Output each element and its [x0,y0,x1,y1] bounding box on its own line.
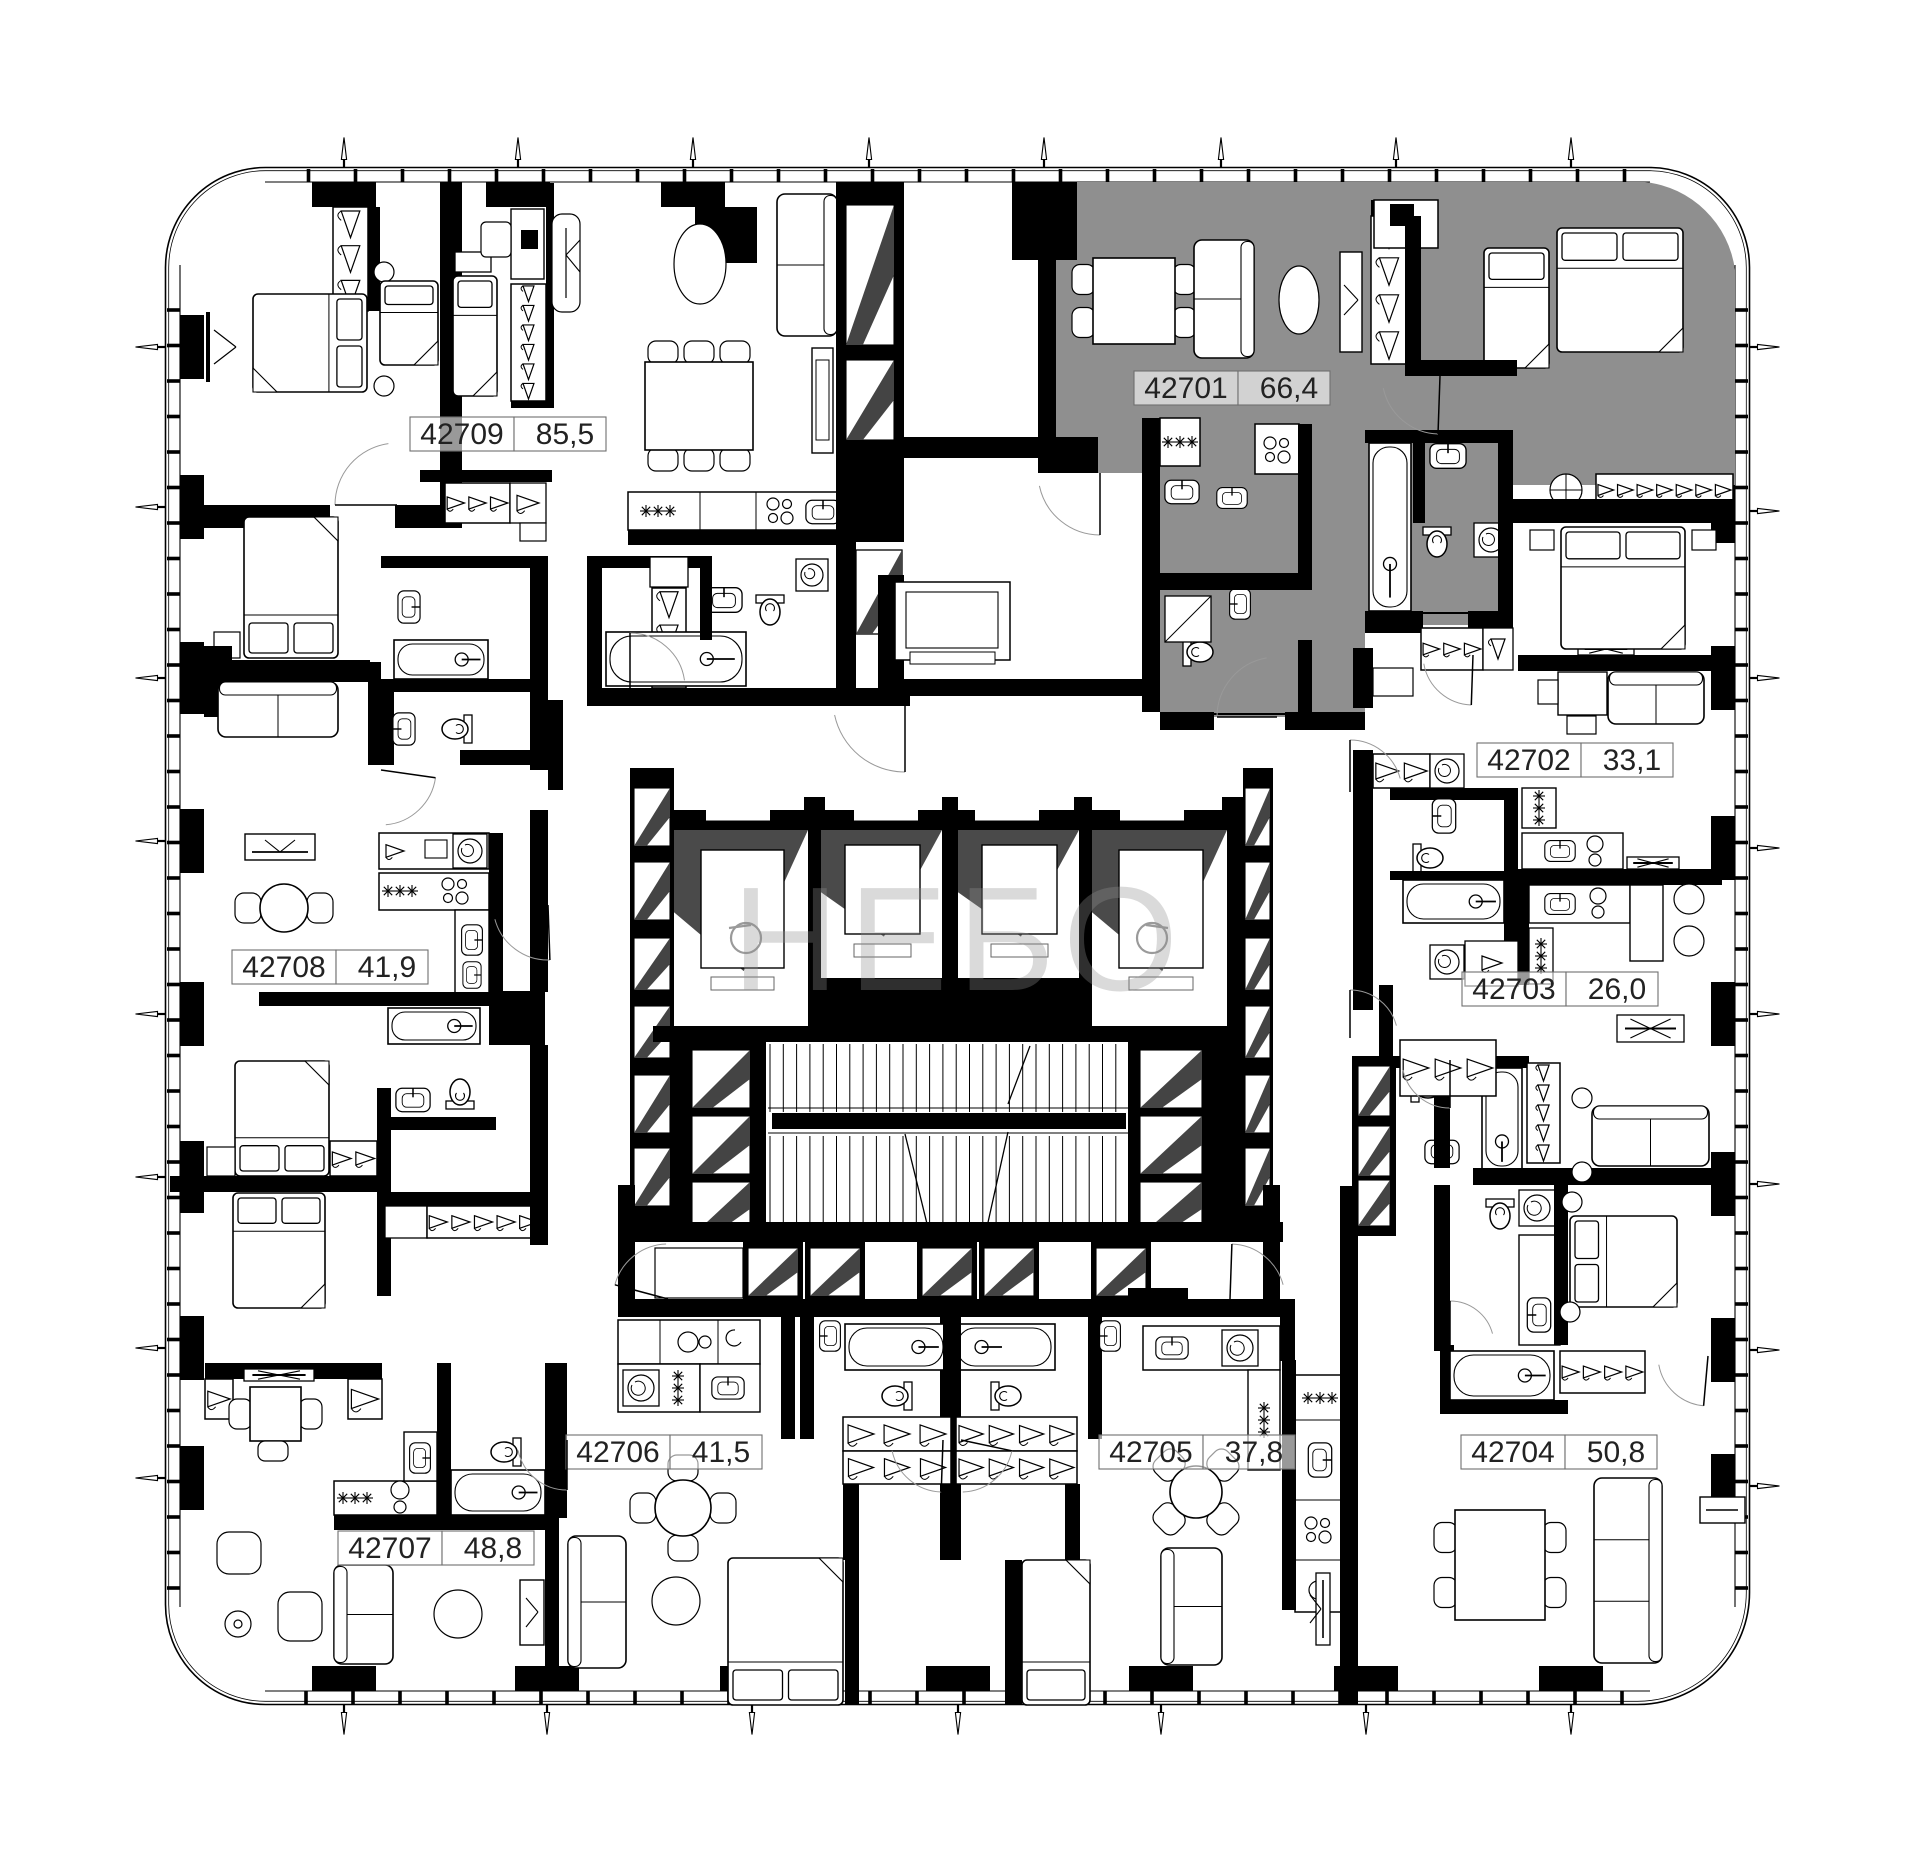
svg-text:48,8: 48,8 [464,1532,522,1565]
svg-text:42705: 42705 [1109,1436,1192,1469]
svg-text:41,9: 41,9 [358,951,416,984]
svg-text:42706: 42706 [576,1436,659,1469]
svg-text:42704: 42704 [1471,1436,1554,1469]
svg-text:42708: 42708 [242,951,325,984]
svg-text:42703: 42703 [1472,973,1555,1006]
svg-text:66,4: 66,4 [1260,372,1318,405]
svg-text:26,0: 26,0 [1588,973,1646,1006]
svg-text:50,8: 50,8 [1587,1436,1645,1469]
svg-text:37,8: 37,8 [1225,1436,1283,1469]
svg-text:41,5: 41,5 [692,1436,750,1469]
svg-text:42707: 42707 [348,1532,431,1565]
svg-text:85,5: 85,5 [536,418,594,451]
svg-text:42701: 42701 [1144,372,1227,405]
svg-text:42702: 42702 [1487,744,1570,777]
svg-text:33,1: 33,1 [1603,744,1661,777]
svg-text:42709: 42709 [420,418,503,451]
svg-text:НЕБО: НЕБО [732,857,1188,1022]
